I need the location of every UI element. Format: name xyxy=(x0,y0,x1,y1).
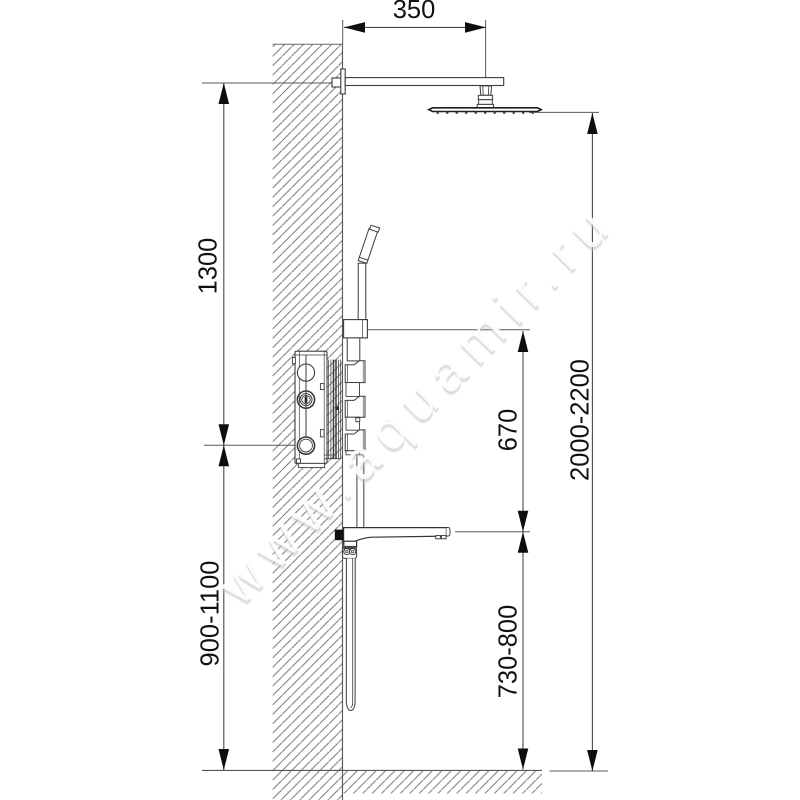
svg-text:1300: 1300 xyxy=(195,238,223,295)
svg-text:670: 670 xyxy=(495,409,523,452)
svg-text:730-800: 730-800 xyxy=(495,605,523,699)
svg-text:2000-2200: 2000-2200 xyxy=(567,359,595,481)
svg-text:350: 350 xyxy=(393,0,436,24)
